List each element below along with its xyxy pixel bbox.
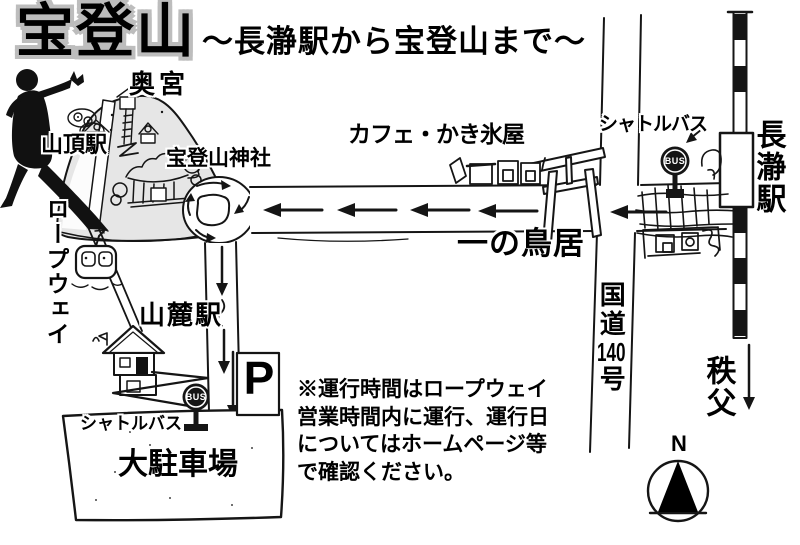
bus-badge-station: BUS — [660, 156, 690, 166]
label-hodosan-shrine: 宝登山神社 — [166, 148, 271, 170]
note-line-4: で確認ください。 — [297, 459, 549, 487]
label-ropeway: ロープウェイ — [44, 197, 68, 347]
base-station-building — [93, 326, 164, 395]
route140-number: 140 — [596, 339, 626, 365]
label-first-torii: 一の鳥居 — [457, 228, 585, 261]
label-base-station: 山麓駅 — [139, 302, 223, 329]
route140-prefix: 国道 — [596, 281, 626, 339]
label-chichibu: 秩父 — [702, 355, 734, 419]
label-okumiya: 奥宮 — [129, 71, 189, 98]
bus-badge-parking: BUS — [181, 392, 211, 402]
label-shuttle-bus-station: シャトルバス — [599, 115, 707, 135]
chichibu-arrow — [743, 345, 755, 410]
compass-north-label: N — [666, 432, 692, 455]
label-route-140: 国道140号 — [597, 281, 624, 394]
label-shuttle-bus-parking: シャトルバス — [80, 415, 182, 433]
note-line-1: ※運行時間はロープウェイ — [297, 376, 549, 404]
note-line-2: 営業時間内に運行、運行日 — [297, 404, 549, 432]
route140-suffix: 号 — [596, 365, 626, 394]
parking-symbol: P — [240, 354, 278, 402]
station-houses-sketch — [643, 227, 720, 258]
hodosan-access-map: 宝登山 ～長瀞駅から宝登山まで～ 奥宮 山頂駅 宝登山神社 カフェ・かき氷屋 シ… — [0, 0, 800, 545]
label-cafe-shaved-ice: カフェ・かき氷屋 — [348, 122, 524, 146]
operation-note: ※運行時間はロープウェイ 営業時間内に運行、運行日 についてはホームページ等 で… — [297, 376, 549, 486]
cafe-stalls-sketch — [450, 158, 545, 184]
note-line-3: についてはホームページ等 — [297, 431, 549, 459]
railway-line — [720, 12, 753, 338]
label-summit-station: 山頂駅 — [41, 133, 107, 156]
map-subtitle: ～長瀞駅から宝登山まで～ — [202, 26, 586, 59]
nagatoro-station-box — [720, 133, 753, 207]
compass-icon — [648, 461, 708, 521]
page-title: 宝登山 — [16, 2, 196, 63]
label-nagatoro-station: 長瀞駅 — [752, 119, 784, 215]
label-parking-lot: 大駐車場 — [118, 449, 238, 481]
